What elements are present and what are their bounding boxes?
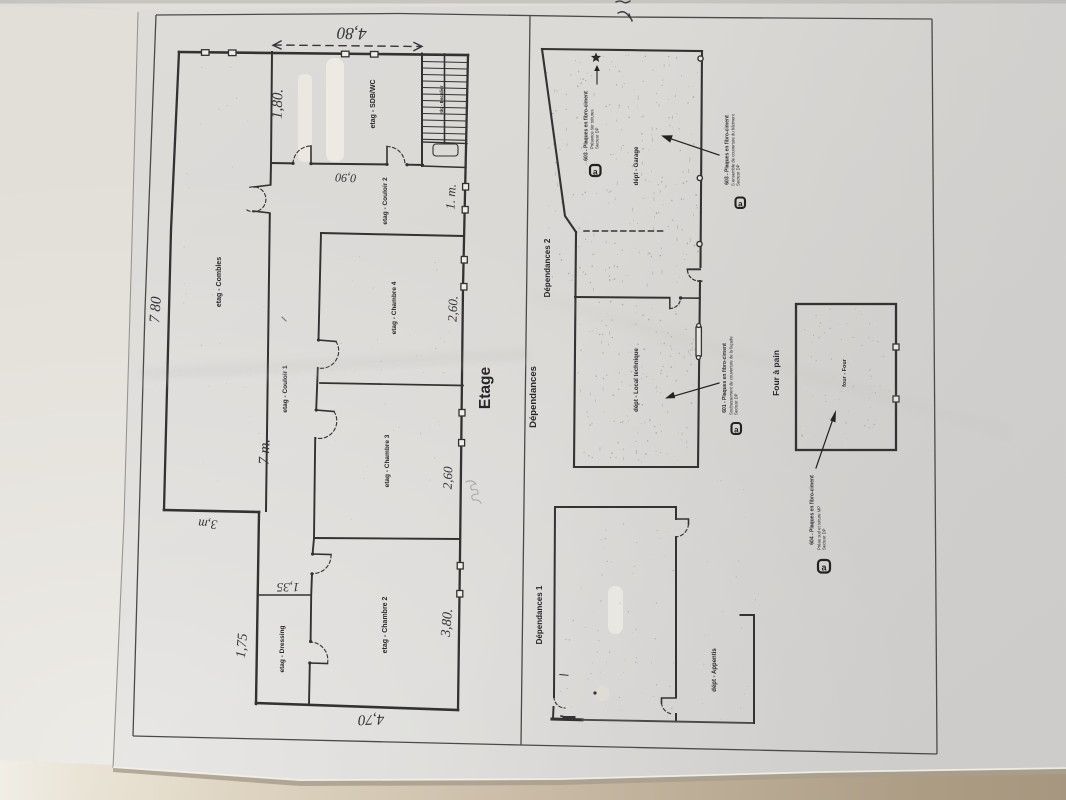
svg-text:dépt - Local technique: dépt - Local technique	[634, 348, 640, 412]
svg-text:2,60: 2,60	[440, 466, 456, 490]
svg-text:1,35: 1,35	[276, 580, 299, 595]
svg-text:3,80.: 3,80.	[439, 608, 456, 638]
svg-text:2,60.: 2,60.	[445, 296, 461, 323]
svg-text:dépt - Appentis: dépt - Appentis	[712, 648, 718, 692]
svg-text:etag - Combles: etag - Combles	[216, 257, 223, 307]
svg-text:0,90: 0,90	[335, 170, 357, 185]
svg-text:4,80: 4,80	[336, 23, 367, 43]
svg-text:Secteur DP: Secteur DP	[736, 164, 741, 186]
svg-text:etag - Chambre 3: etag - Chambre 3	[384, 434, 391, 487]
svg-text:etag - Chambre 4: etag - Chambre 4	[391, 281, 398, 334]
svg-text:4,70: 4,70	[357, 711, 384, 728]
svg-text:etag - Couloir 2: etag - Couloir 2	[382, 177, 389, 225]
svg-text:3,m: 3,m	[198, 516, 219, 532]
svg-text:1. m.: 1. m.	[442, 184, 458, 210]
svg-text:Secteur DP: Secteur DP	[595, 127, 600, 149]
svg-text:Secteur DP: Secteur DP	[734, 393, 739, 415]
svg-text:1,80.: 1,80.	[269, 89, 286, 120]
svg-text:rdc - Escalier: rdc - Escalier	[439, 85, 444, 114]
svg-text:etag - SDB/WC: etag - SDB/WC	[370, 80, 377, 129]
svg-text:1,75: 1,75	[234, 633, 251, 659]
svg-text:Dépendances 2: Dépendances 2	[543, 238, 552, 297]
svg-text:Secteur DP: Secteur DP	[822, 528, 827, 550]
svg-text:a: a	[734, 426, 739, 435]
svg-text:a: a	[738, 200, 743, 209]
svg-text:Dépendances 1: Dépendances 1	[535, 585, 544, 644]
svg-text:Etage: Etage	[477, 367, 494, 410]
svg-text:a: a	[593, 167, 598, 177]
svg-text:Dépendances: Dépendances	[528, 366, 539, 428]
svg-text:604 - Plaques en fibro-ciment: 604 - Plaques en fibro-ciment	[810, 475, 816, 545]
svg-text:dépt - Garage: dépt - Garage	[634, 146, 640, 185]
svg-text:etag - Chambre 2: etag - Chambre 2	[382, 596, 389, 653]
svg-text:etag - Dressing: etag - Dressing	[279, 625, 286, 672]
svg-text:7 m.: 7 m.	[257, 439, 274, 465]
svg-text:7 80: 7 80	[147, 296, 165, 324]
